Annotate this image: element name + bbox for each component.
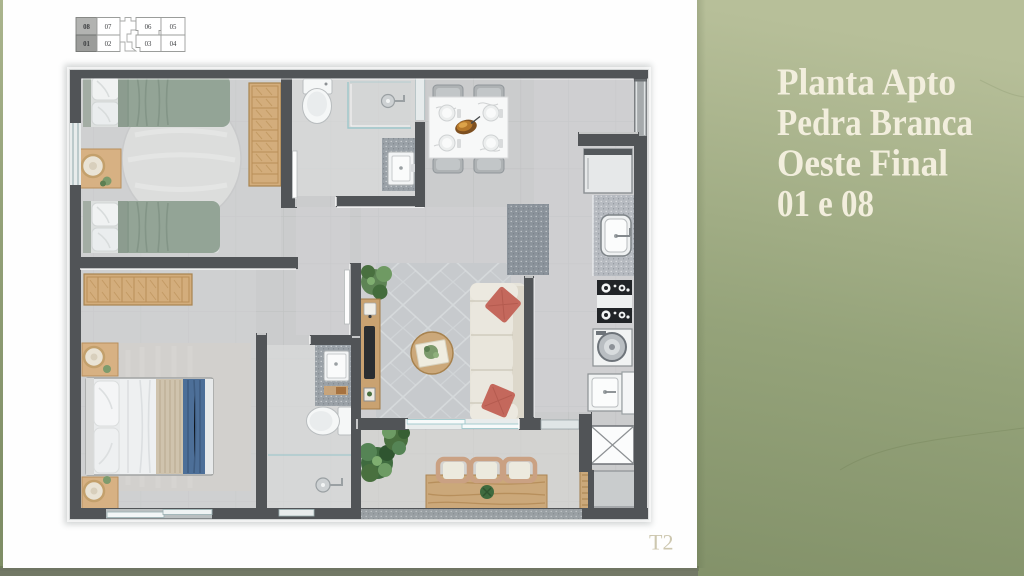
svg-text:02: 02 bbox=[105, 41, 112, 48]
svg-text:05: 05 bbox=[170, 24, 177, 31]
svg-text:08: 08 bbox=[83, 24, 90, 31]
svg-text:03: 03 bbox=[145, 41, 152, 48]
svg-text:T2: T2 bbox=[649, 530, 673, 555]
svg-text:04: 04 bbox=[170, 41, 177, 48]
svg-text:01 e 08: 01 e 08 bbox=[777, 183, 874, 225]
svg-text:Oeste Final: Oeste Final bbox=[777, 143, 948, 185]
svg-text:06: 06 bbox=[145, 24, 152, 31]
svg-text:Planta Apto: Planta Apto bbox=[777, 62, 956, 104]
svg-text:07: 07 bbox=[105, 24, 112, 31]
svg-text:01: 01 bbox=[83, 41, 90, 48]
svg-text:Pedra Branca: Pedra Branca bbox=[777, 102, 973, 144]
